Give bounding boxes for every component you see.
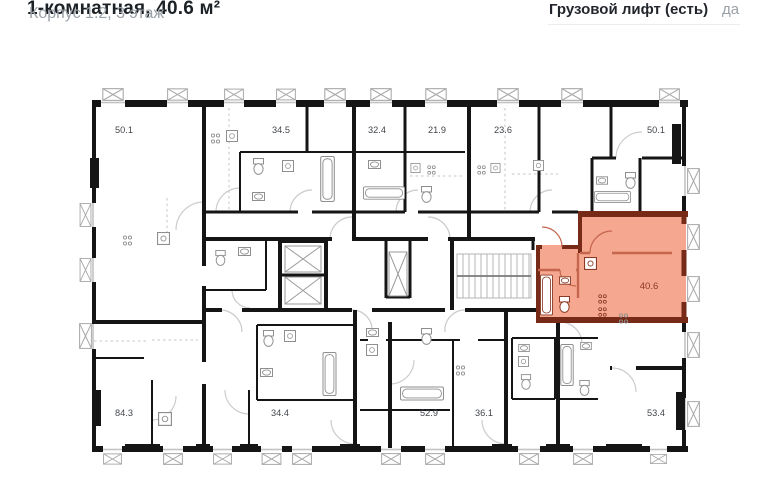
window-icon bbox=[498, 89, 518, 101]
window-icon bbox=[688, 225, 700, 250]
window-icon bbox=[660, 89, 680, 100]
window-icon bbox=[168, 89, 188, 100]
bathtub-icon bbox=[540, 275, 552, 315]
stove-icon bbox=[123, 236, 131, 245]
kitchen-sink-icon bbox=[585, 258, 597, 270]
window-icon bbox=[293, 454, 312, 465]
window-icon bbox=[277, 89, 296, 100]
window-icon bbox=[520, 454, 539, 465]
room-area-label: 50.1 bbox=[647, 125, 665, 135]
window-icon bbox=[325, 89, 345, 101]
kitchen-sink-icon bbox=[533, 160, 543, 170]
sink-icon bbox=[519, 344, 530, 351]
room-area-label: 34.4 bbox=[271, 408, 289, 418]
bathtub-icon bbox=[321, 157, 335, 202]
bathtub-icon bbox=[363, 187, 404, 199]
toilet-icon bbox=[264, 331, 274, 347]
toilet-icon bbox=[254, 159, 264, 175]
window-icon bbox=[426, 89, 446, 101]
toilet-icon bbox=[216, 250, 225, 265]
washer-icon bbox=[285, 331, 296, 342]
toilet-icon bbox=[626, 173, 636, 189]
sink-icon bbox=[239, 248, 251, 256]
window-icon bbox=[164, 454, 183, 465]
room-area-label: 21.9 bbox=[428, 125, 446, 135]
room-area-label: 23.6 bbox=[494, 125, 512, 135]
window-icon bbox=[225, 89, 244, 100]
sink-icon bbox=[559, 277, 570, 284]
window-icon bbox=[651, 454, 667, 463]
kitchen-sink-icon bbox=[158, 233, 170, 245]
washer-icon bbox=[159, 413, 172, 426]
sink-icon bbox=[596, 177, 607, 184]
washer-icon bbox=[367, 345, 378, 356]
window-icon bbox=[80, 259, 91, 282]
bathtub-icon bbox=[561, 344, 573, 385]
washer-icon bbox=[283, 161, 294, 172]
room-area-label: 36.1 bbox=[475, 408, 493, 418]
window-icon bbox=[214, 454, 232, 464]
highlighted-apartment[interactable] bbox=[536, 212, 686, 322]
room-area-label: 52.9 bbox=[420, 408, 438, 418]
bathtub-icon bbox=[323, 353, 336, 396]
toilet-icon bbox=[560, 297, 570, 313]
window-icon bbox=[104, 454, 122, 464]
highlighted-area-label: 40.6 bbox=[640, 281, 659, 292]
room-area-label: 84.3 bbox=[115, 408, 133, 418]
window-icon bbox=[562, 89, 582, 101]
room-area-label: 53.4 bbox=[647, 408, 665, 418]
window-icon bbox=[80, 204, 91, 227]
staircase-icon bbox=[457, 254, 531, 298]
sink-icon bbox=[369, 161, 381, 169]
bathtub-icon bbox=[594, 192, 630, 203]
window-icon bbox=[80, 324, 92, 349]
room-area-label: 34.5 bbox=[272, 125, 290, 135]
room-area-label: 50.1 bbox=[115, 125, 133, 135]
stove-icon bbox=[428, 166, 436, 174]
window-icon bbox=[371, 89, 391, 101]
window-icon bbox=[103, 89, 123, 101]
sink-icon bbox=[367, 329, 379, 337]
room-area-label: 32.4 bbox=[368, 125, 386, 135]
sink-icon bbox=[253, 193, 265, 201]
toilet-icon bbox=[580, 380, 589, 395]
window-icon bbox=[688, 402, 700, 427]
sink-icon bbox=[261, 369, 273, 377]
floor-plan: 50.1 34.5 32.4 21.9 23.6 50.1 40.6 84.3 … bbox=[0, 0, 770, 500]
window-icon bbox=[688, 169, 700, 194]
kitchen-sink-icon bbox=[411, 163, 420, 172]
toilet-icon bbox=[422, 187, 432, 203]
kitchen-sink-icon bbox=[491, 163, 500, 172]
stove-icon bbox=[211, 134, 219, 143]
window-icon bbox=[574, 454, 593, 465]
window-icon bbox=[262, 454, 281, 465]
toilet-icon bbox=[521, 375, 530, 390]
window-icon bbox=[382, 454, 401, 465]
bathtub-icon bbox=[401, 387, 444, 400]
sink-icon bbox=[581, 342, 592, 349]
stove-icon bbox=[478, 166, 486, 174]
stove-icon bbox=[456, 366, 464, 375]
toilet-icon bbox=[422, 329, 432, 345]
kitchen-sink-icon bbox=[227, 131, 238, 142]
window-icon bbox=[688, 277, 700, 302]
washer-icon bbox=[518, 356, 528, 366]
window-icon bbox=[426, 454, 445, 465]
apartment-floorplan-screen: 1-комнатная, 40.6 м² Корпус 1.2, 3 этаж … bbox=[0, 0, 770, 500]
window-icon bbox=[688, 333, 700, 358]
